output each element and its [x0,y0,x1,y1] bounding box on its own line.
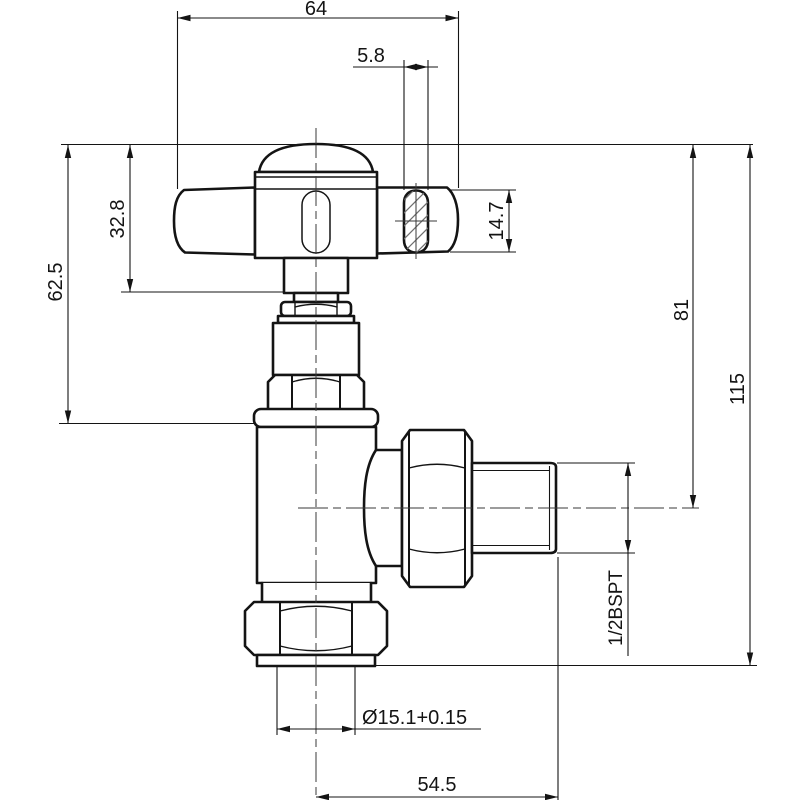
dim-thread-group: 1/2BSPT [557,463,635,656]
dim-label-overall-height: 115 [727,373,749,405]
technical-drawing-canvas: 64 5.8 32.8 62.5 [0,0,800,800]
dim-14-7-group: 14.7 [450,190,516,252]
handle-wing-left [174,188,255,255]
dim-62-5-group: 62.5 [45,145,255,424]
dim-label-arm-section-width: 5.8 [357,45,385,67]
dim-label-top-to-body: 62.5 [45,263,67,302]
dim-label-outlet-thread: 1/2BSPT [606,570,627,646]
dim-label-top-to-axis: 81 [671,299,693,321]
dim-label-inlet-bore: Ø15.1+0.15 [362,707,467,729]
dimension-annotations: 64 5.8 32.8 62.5 [45,0,757,800]
dim-label-axis-to-outlet-end: 54.5 [418,774,457,796]
dim-label-handle-width: 64 [305,0,327,20]
drawing-page: 64 5.8 32.8 62.5 [0,0,800,800]
dim-label-top-to-stem: 32.8 [107,200,129,239]
dim-label-arm-section-height: 14.7 [486,202,508,241]
dim-bore-group: Ø15.1+0.15 [277,667,481,735]
valve-body [257,427,402,583]
dim-81-group: 81 [671,145,696,508]
